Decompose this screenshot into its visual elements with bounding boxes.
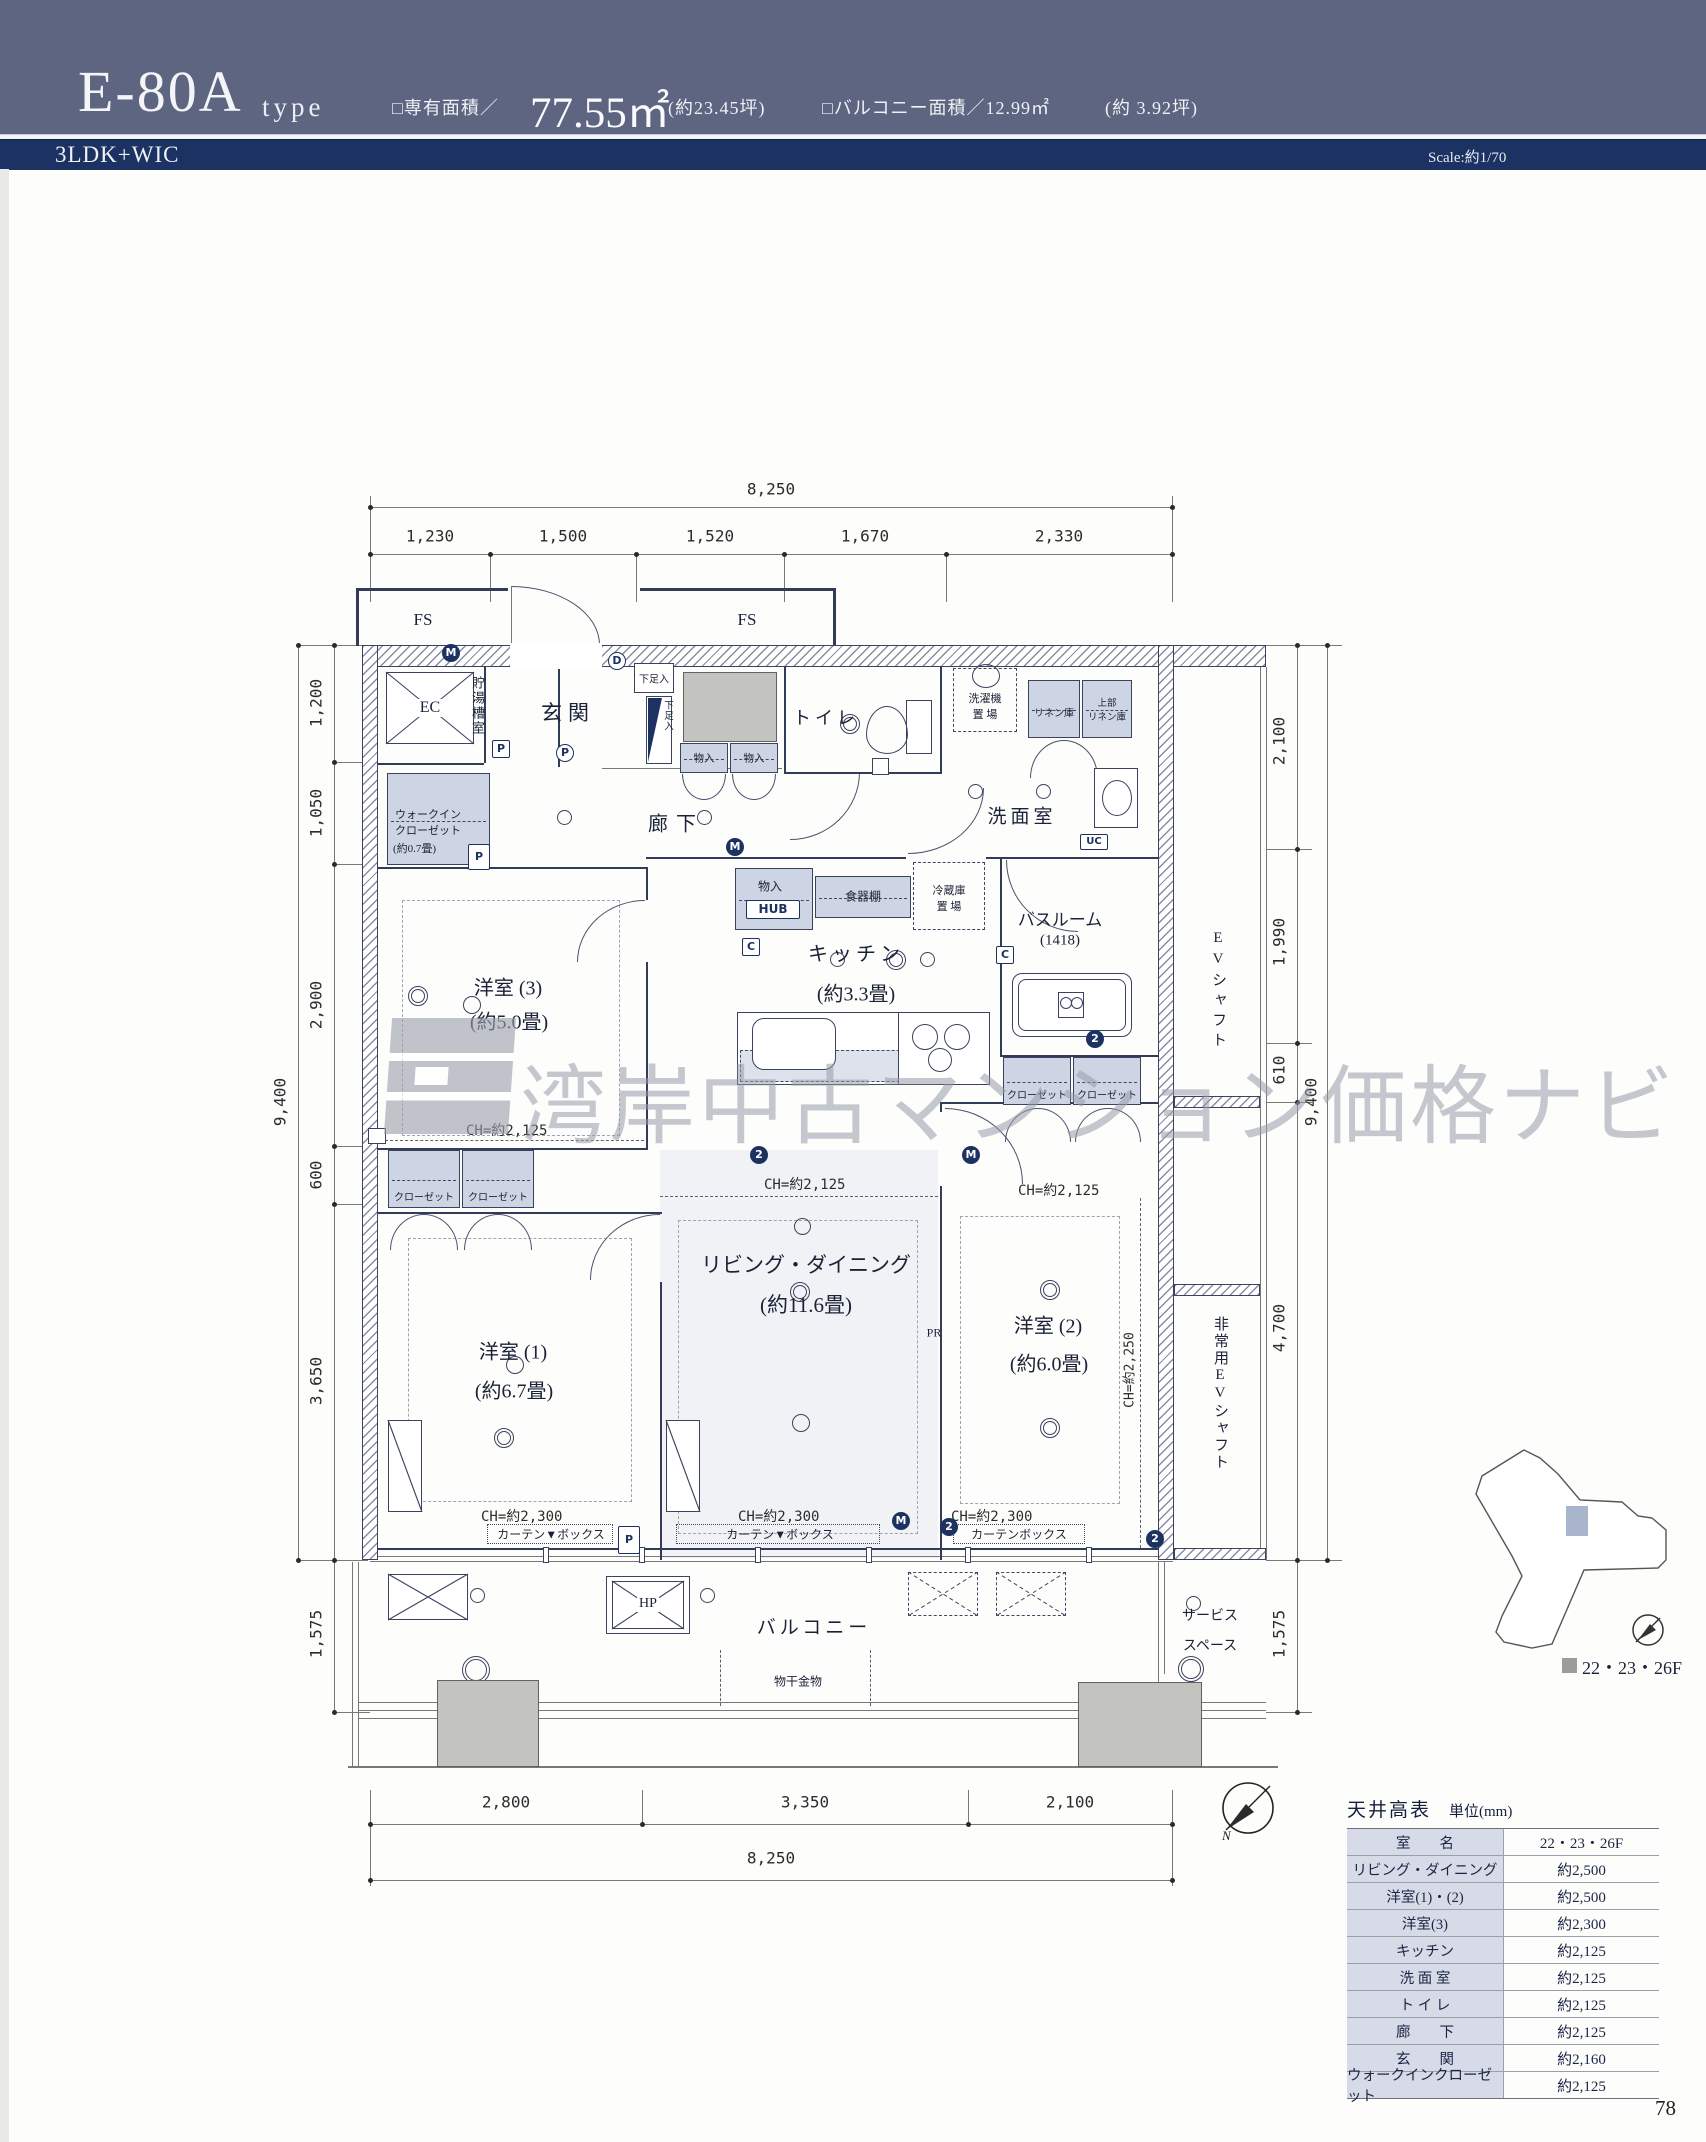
laundry-label-2: 置 場 bbox=[973, 706, 998, 722]
two-symbol-3: 2 bbox=[940, 1518, 958, 1536]
hall-mono1-label: 物入 bbox=[694, 751, 715, 766]
unit-type-suffix: type bbox=[262, 92, 325, 123]
fridge-label-2: 置 場 bbox=[937, 898, 962, 914]
ch-yoshitsu2-top: CH=約2,125 bbox=[1018, 1180, 1099, 1200]
bath-label: バスルーム bbox=[1018, 906, 1103, 931]
kitchen-size-label: (約3.3畳) bbox=[817, 978, 895, 1007]
monohoshi-label: 物干金物 bbox=[774, 1673, 822, 1690]
header-band: E-80A type □専有面積／ 77.55㎡ (約23.45坪) □バルコニ… bbox=[0, 0, 1706, 134]
plan-type-label: 3LDK+WIC bbox=[55, 142, 179, 168]
table-unit: 単位(mm) bbox=[1449, 1804, 1512, 1820]
plan-type-bar: 3LDK+WIC Scale:約1/70 bbox=[0, 139, 1706, 170]
dim-left-seg5: 3,650 bbox=[307, 1357, 326, 1405]
c-symbol-2: C bbox=[996, 946, 1014, 964]
ev-shaft-label: EVシャフト bbox=[1208, 930, 1229, 1052]
m-symbol-1: M bbox=[442, 644, 460, 662]
dim-bottom-seg3: 2,100 bbox=[1046, 1793, 1094, 1812]
dim-top-seg1: 1,230 bbox=[406, 527, 454, 546]
fs-label-1: FS bbox=[414, 610, 433, 630]
m-symbol-2: M bbox=[726, 838, 744, 856]
laundry-label-1: 洗濯機 bbox=[969, 690, 1002, 706]
service-label-2: スペース bbox=[1183, 1635, 1237, 1655]
wall-ev2-bottom bbox=[1174, 1548, 1266, 1560]
dim-left-total: 9,400 bbox=[271, 1078, 290, 1126]
kitchen-label: キッチン bbox=[808, 938, 904, 967]
ld-size-label: (約11.6畳) bbox=[760, 1289, 852, 1319]
pillar-right bbox=[1078, 1682, 1202, 1767]
balcony-label: バルコニー bbox=[757, 1613, 872, 1640]
watermark-logo bbox=[384, 1018, 516, 1134]
closet-label-2: クローゼット bbox=[468, 1189, 528, 1204]
scale-label: Scale:約1/70 bbox=[1428, 146, 1506, 167]
senmen-label: 洗面室 bbox=[987, 802, 1056, 829]
dim-top-seg3: 1,520 bbox=[686, 527, 734, 546]
yoshitsu1-label: 洋室 (1) bbox=[479, 1336, 547, 1365]
table-row: 洋室(1)・(2)約2,500 bbox=[1347, 1883, 1659, 1910]
toilet-label: トイレ bbox=[793, 704, 859, 730]
curtainbox-y2-label: カーテンボックス bbox=[971, 1526, 1067, 1543]
pillar-left bbox=[437, 1680, 539, 1767]
cupboard-label: 食器棚 bbox=[845, 888, 881, 905]
toilet-door-arc bbox=[790, 772, 860, 840]
dim-bottom-seg1: 2,800 bbox=[482, 1793, 530, 1812]
linen-label: リネン庫 bbox=[1034, 705, 1074, 720]
area-label: □専有面積／ bbox=[392, 94, 499, 120]
balcony-area: □バルコニー面積／12.99㎡ bbox=[822, 94, 1050, 120]
yoshitsu1-size-label: (約6.7畳) bbox=[475, 1375, 553, 1404]
d-symbol: D bbox=[608, 652, 626, 670]
upper-linen-label-1: 上部 bbox=[1097, 695, 1116, 709]
pr-label: PR bbox=[927, 1326, 942, 1341]
scan-edge bbox=[0, 169, 9, 2142]
yoshitsu2-size-label: (約6.0畳) bbox=[1010, 1348, 1088, 1377]
ceiling-height-table: 天井高表 単位(mm) 室 名22・23・26F リビング・ダイニング約2,50… bbox=[1347, 1795, 1659, 2099]
dim-left-seg3: 2,900 bbox=[307, 981, 326, 1029]
hall-mono2-label: 物入 bbox=[744, 751, 765, 766]
upper-linen-label-2: リネン庫 bbox=[1088, 709, 1126, 723]
dim-top-seg4: 1,670 bbox=[841, 527, 889, 546]
table-row: リビング・ダイニング約2,500 bbox=[1347, 1856, 1659, 1883]
table-row: 洗 面 室約2,125 bbox=[1347, 1964, 1659, 1991]
toilet-bowl bbox=[866, 706, 908, 754]
pillar-entry bbox=[683, 672, 777, 742]
ch-yoshitsu1: CH=約2,300 bbox=[481, 1506, 562, 1526]
wic-label-1: ウォークイン bbox=[395, 806, 461, 822]
toilet-tank bbox=[906, 700, 932, 754]
fs-label-2: FS bbox=[738, 610, 757, 630]
entrance-door-arc bbox=[511, 586, 600, 645]
shoe-tall-label: 下足入 bbox=[660, 700, 674, 732]
watermark-text: 湾岸中古マンション価格ナビ bbox=[520, 1036, 1480, 1161]
ch-yoshitsu2-bottom: CH=約2,300 bbox=[951, 1506, 1032, 1526]
p-symbol-1: P bbox=[556, 744, 574, 762]
m-symbol-3: M bbox=[892, 1512, 910, 1530]
wall-left bbox=[362, 645, 378, 1560]
dim-bottom-seg2: 3,350 bbox=[781, 1793, 829, 1812]
wic-size-label: (約0.7畳) bbox=[393, 840, 436, 856]
dim-left-balcony: 1,575 bbox=[307, 1610, 326, 1658]
ev-emergency-label: 非常用EVシャフト bbox=[1210, 1316, 1231, 1471]
wic-label-2: クローゼット bbox=[395, 822, 461, 838]
hub-label: HUB bbox=[746, 900, 800, 919]
wall-top bbox=[362, 645, 1266, 667]
unit-type-title: E-80A bbox=[78, 58, 243, 125]
table-row: 洋室(3)約2,300 bbox=[1347, 1910, 1659, 1937]
dim-bottom-total: 8,250 bbox=[747, 1849, 795, 1868]
dim-right-balcony: 1,575 bbox=[1270, 1610, 1289, 1658]
floorplan-page: E-80A type □専有面積／ 77.55㎡ (約23.45坪) □バルコニ… bbox=[0, 0, 1706, 2142]
service-label-1: サービス bbox=[1182, 1605, 1238, 1625]
page-number: 78 bbox=[1655, 2096, 1676, 2121]
table-row: キッチン約2,125 bbox=[1347, 1937, 1659, 1964]
dim-top-seg2: 1,500 bbox=[539, 527, 587, 546]
compass-icon: N bbox=[1216, 1778, 1280, 1842]
two-symbol-4: 2 bbox=[1146, 1530, 1164, 1548]
dim-top-seg5: 2,330 bbox=[1035, 527, 1083, 546]
ch-yoshitsu2: CH=約2,250 bbox=[1119, 1332, 1138, 1408]
ec-label: EC bbox=[417, 699, 443, 717]
table-row: 室 名22・23・26F bbox=[1347, 1829, 1659, 1856]
area-value: 77.55㎡ bbox=[530, 78, 670, 140]
table-row: ウォークインクローゼット約2,125 bbox=[1347, 2072, 1659, 2098]
keyplan-legend-swatch bbox=[1562, 1658, 1577, 1673]
p-box-1: P bbox=[492, 740, 510, 758]
closet-label-1: クローゼット bbox=[394, 1189, 454, 1204]
table-row: 廊 下約2,125 bbox=[1347, 2018, 1659, 2045]
genkan-label: 玄関 bbox=[541, 697, 595, 727]
wall-ev2-top bbox=[1174, 1284, 1260, 1296]
table-title: 天井高表 bbox=[1347, 1800, 1431, 1821]
p-box-2: P bbox=[468, 844, 490, 870]
rouka-label: 廊下 bbox=[648, 808, 704, 837]
keyplan-legend: 22・23・26F bbox=[1582, 1654, 1682, 1680]
yoshitsu3-label: 洋室 (3) bbox=[474, 972, 542, 1001]
yoshitsu2-label: 洋室 (2) bbox=[1014, 1310, 1082, 1339]
curtainbox-ld-label: カーテン▼ボックス bbox=[726, 1526, 834, 1543]
p-box-window: P bbox=[618, 1526, 640, 1554]
ld-label: リビング・ダイニング bbox=[701, 1249, 911, 1279]
dim-right-seg3: 4,700 bbox=[1270, 1304, 1289, 1352]
dim-top-total: 8,250 bbox=[747, 480, 795, 499]
dim-left-seg2: 1,050 bbox=[307, 789, 326, 837]
ch-ld: CH=約2,125 bbox=[764, 1174, 845, 1194]
keyplan bbox=[1462, 1434, 1682, 1664]
ch-ld-bottom: CH=約2,300 bbox=[738, 1506, 819, 1526]
hp-label: HP bbox=[637, 1596, 659, 1612]
bath-size-label: (1418) bbox=[1040, 933, 1080, 950]
svg-text:N: N bbox=[1221, 1828, 1232, 1843]
dim-right-seg1: 1,990 bbox=[1270, 918, 1289, 966]
entrance-opening bbox=[510, 643, 602, 669]
uc-label: UC bbox=[1080, 834, 1108, 850]
dim-left-seg4: 600 bbox=[307, 1161, 326, 1190]
yoshitsu1-door-arc bbox=[590, 1214, 660, 1280]
area-tsubo: (約23.45坪) bbox=[668, 94, 766, 120]
fridge-label-1: 冷蔵庫 bbox=[933, 882, 966, 898]
shoe-box-label: 下足入 bbox=[639, 671, 669, 686]
mono-label: 物入 bbox=[758, 878, 782, 895]
table-row: ト イ レ約2,125 bbox=[1347, 1991, 1659, 2018]
balcony-tsubo: (約 3.92坪) bbox=[1105, 94, 1198, 120]
dim-left-seg1: 1,200 bbox=[307, 679, 326, 727]
c-symbol-1: C bbox=[742, 938, 760, 956]
choto-label: 貯湯槽室 bbox=[468, 676, 487, 736]
dim-right-top: 2,100 bbox=[1270, 717, 1289, 765]
curtainbox-y1-label: カーテン▼ボックス bbox=[497, 1526, 605, 1543]
keyplan-unit-highlight bbox=[1566, 1506, 1588, 1536]
